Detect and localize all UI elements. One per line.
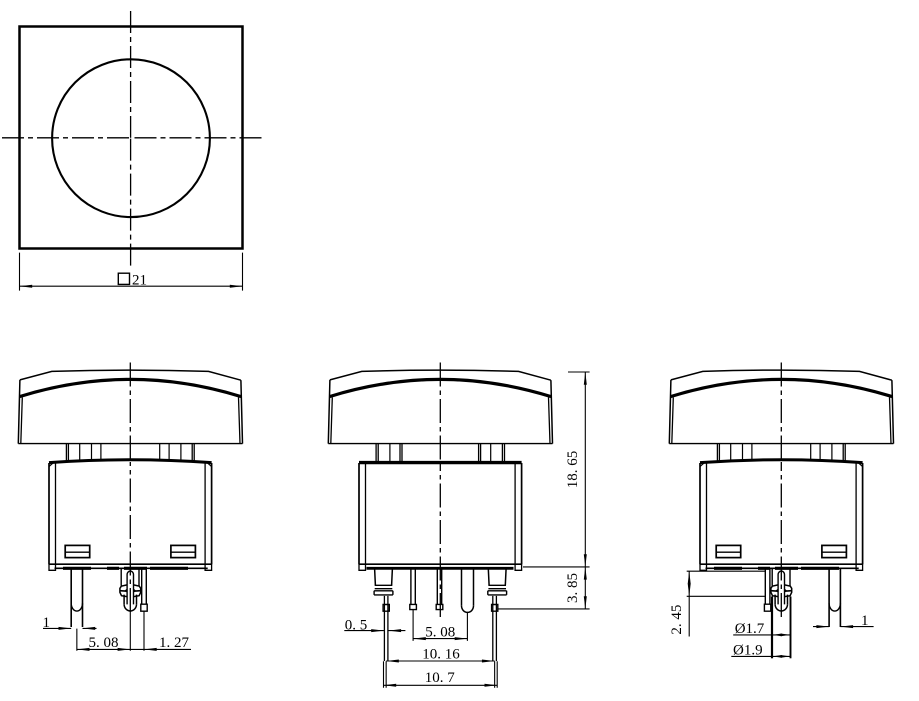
svg-text:3. 85: 3. 85: [565, 573, 581, 603]
svg-text:1. 27: 1. 27: [159, 635, 190, 651]
svg-text:21: 21: [132, 272, 147, 288]
svg-text:5. 08: 5. 08: [89, 635, 119, 651]
svg-text:5. 08: 5. 08: [425, 624, 455, 640]
svg-text:Ø1.7: Ø1.7: [735, 621, 765, 637]
svg-text:10. 16: 10. 16: [422, 647, 460, 663]
svg-text:1: 1: [861, 613, 869, 629]
svg-text:0. 5: 0. 5: [345, 617, 368, 633]
svg-text:2. 45: 2. 45: [669, 605, 685, 635]
svg-text:18. 65: 18. 65: [565, 451, 581, 489]
svg-text:1: 1: [43, 615, 51, 631]
svg-text:Ø1.9: Ø1.9: [733, 642, 763, 658]
svg-text:10. 7: 10. 7: [425, 670, 456, 686]
